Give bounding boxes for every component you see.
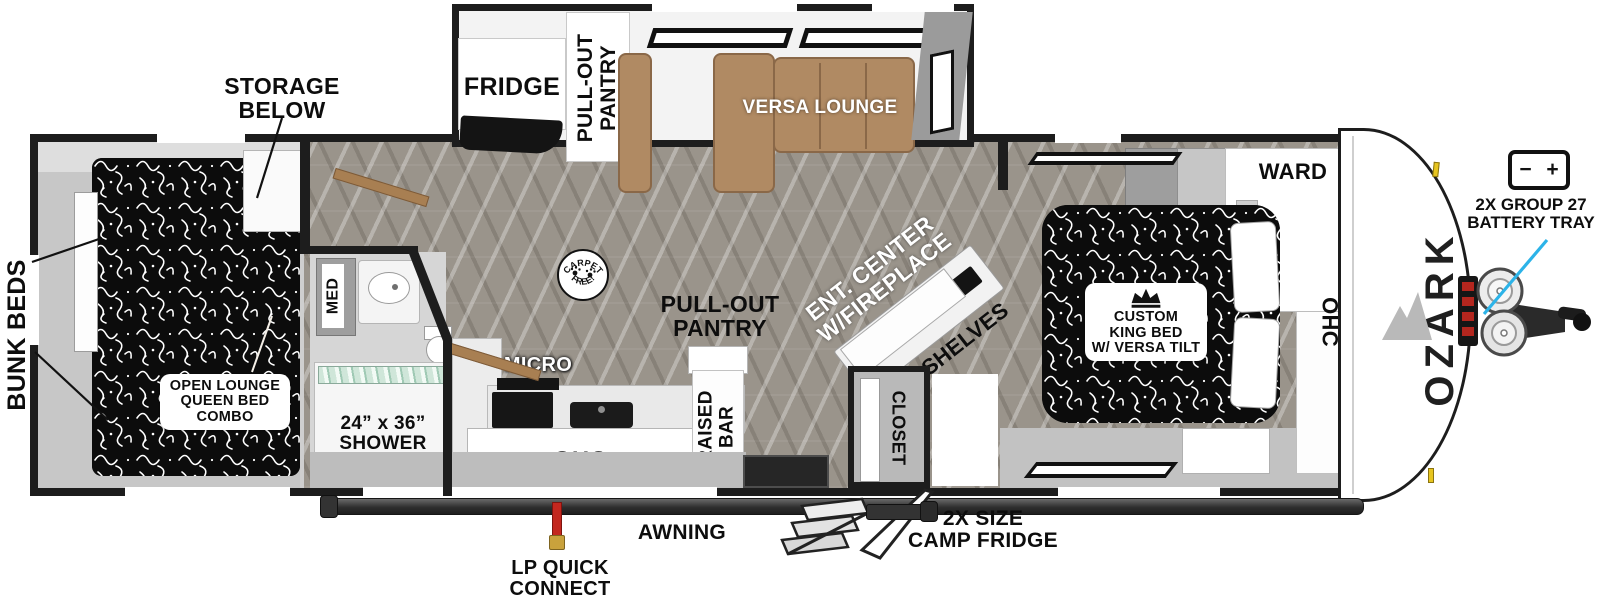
awning-label: AWNING bbox=[612, 522, 752, 544]
bathroom-top-wall bbox=[306, 246, 418, 254]
front-cap-seam bbox=[1352, 136, 1354, 494]
slide-top-window-1 bbox=[652, 4, 797, 12]
slide-window-bar-2 bbox=[799, 28, 941, 48]
battery-plus: + bbox=[1546, 158, 1558, 182]
fridge-label: FRIDGE bbox=[462, 74, 562, 101]
battery-tray-label: 2X GROUP 27 BATTERY TRAY bbox=[1462, 196, 1600, 232]
lp-connector-stem bbox=[552, 502, 562, 538]
bedroom-top-window bbox=[1027, 152, 1182, 165]
bedroom-wall-stub bbox=[998, 142, 1008, 190]
slide-top-window-2 bbox=[872, 4, 954, 12]
bath-sink-bowl bbox=[368, 272, 410, 304]
hitch-assembly bbox=[1470, 260, 1600, 370]
battery-minus: − bbox=[1519, 158, 1531, 182]
wardrobe-label: WARD bbox=[1253, 160, 1333, 183]
pillow-top bbox=[1230, 221, 1281, 313]
awning-end-cap bbox=[320, 495, 338, 518]
bunk-sheet bbox=[74, 192, 98, 352]
slide-window-bar-1 bbox=[647, 28, 793, 48]
kitchen-faucet bbox=[598, 406, 605, 413]
battery-icon: − + bbox=[1508, 150, 1570, 190]
bunk-bottom-window bbox=[125, 487, 290, 496]
bath-faucet bbox=[392, 284, 398, 290]
pillow-bottom bbox=[1230, 317, 1281, 409]
bunk-beds-label: BUNK BEDS bbox=[4, 259, 31, 410]
bedroom-nightstand bbox=[1182, 428, 1270, 474]
crown-icon bbox=[1128, 287, 1164, 309]
bedroom-top-wall-window bbox=[1055, 134, 1121, 143]
bunk-left-window bbox=[30, 255, 39, 345]
lp-connector-tip bbox=[549, 535, 565, 550]
shower-label: 24” x 36” SHOWER bbox=[320, 414, 446, 454]
sofa-chaise-left bbox=[618, 53, 652, 193]
marker-light-bottom bbox=[1428, 468, 1434, 483]
bunk-divider-wall bbox=[300, 142, 310, 254]
pantry-label: PULL-OUT PANTRY bbox=[574, 34, 620, 143]
sofa-chaise-right bbox=[713, 53, 775, 193]
open-lounge-label: OPEN LOUNGE QUEEN BED COMBO bbox=[160, 374, 290, 430]
carpet-free-badge: CARPET FREE! bbox=[556, 248, 610, 302]
mountain-icon bbox=[1380, 286, 1434, 344]
range-hood bbox=[497, 378, 559, 390]
stove bbox=[492, 392, 553, 428]
versa-lounge-label: VERSA LOUNGE bbox=[730, 98, 910, 118]
med-label: MED bbox=[326, 278, 343, 314]
lp-quick-connect-label: LP QUICK CONNECT bbox=[500, 558, 620, 600]
bunk-top-window bbox=[157, 134, 245, 143]
storage-below-label: STORAGE BELOW bbox=[222, 74, 342, 123]
storage-cabinet bbox=[243, 150, 303, 232]
fridge-door bbox=[459, 115, 563, 154]
king-bed-label-box: CUSTOM KING BED W/ VERSA TILT bbox=[1085, 283, 1207, 361]
bedroom-bottom-window bbox=[1024, 462, 1179, 478]
camp-fridge-label: 2X SIZE CAMP FRIDGE bbox=[898, 508, 1068, 553]
bedroom-overhead-right bbox=[1177, 148, 1227, 208]
pullout-pantry-floor-label: PULL-OUT PANTRY bbox=[655, 292, 785, 341]
marker-light-top bbox=[1432, 162, 1440, 178]
floorplan-canvas: OPEN LOUNGE QUEEN BED COMBO MED 24” x 36… bbox=[0, 0, 1600, 609]
gray-walkway bbox=[310, 452, 746, 488]
kitchen-bottom-window bbox=[363, 487, 717, 496]
king-bed-label: CUSTOM KING BED W/ VERSA TILT bbox=[1092, 310, 1201, 356]
bedroom-bottom-wall-window bbox=[1058, 487, 1220, 496]
shower-glass bbox=[318, 366, 446, 384]
slide-side-window bbox=[930, 49, 954, 134]
